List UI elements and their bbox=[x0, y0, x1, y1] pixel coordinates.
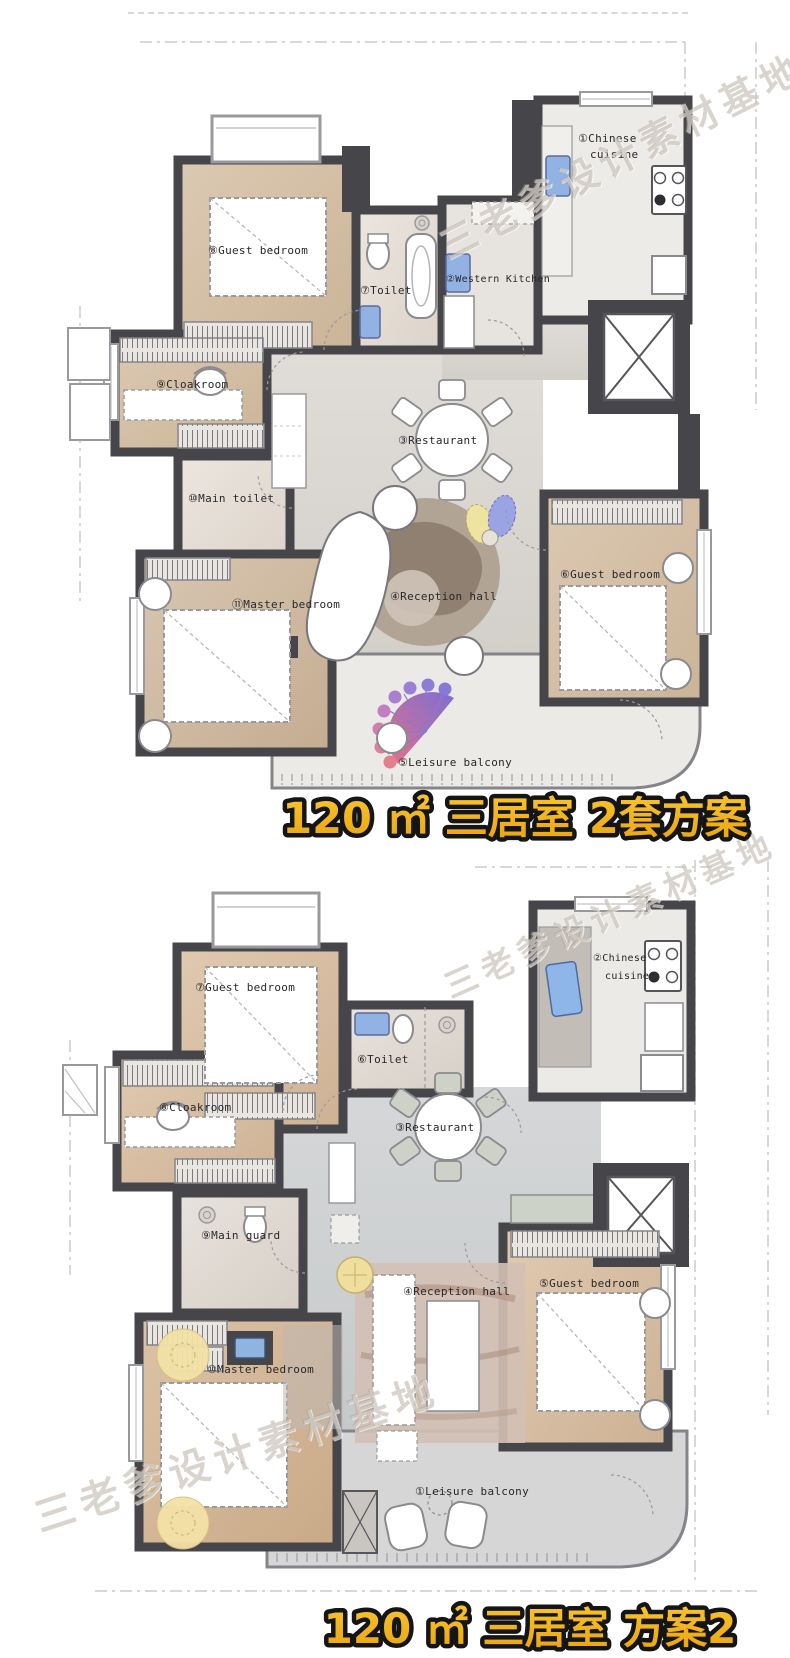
plan2-label-guest-bedroom-top: ⑦Guest bedroom bbox=[195, 981, 295, 994]
shower-drain-icon bbox=[439, 1017, 455, 1033]
plan2-label-restaurant: ③Restaurant bbox=[395, 1121, 474, 1134]
side-table bbox=[373, 486, 417, 530]
plan2-label-main-guard: ⑨Main guard bbox=[201, 1229, 280, 1242]
plan1-elevator bbox=[588, 300, 690, 414]
plan1-cloakroom-island bbox=[124, 390, 242, 420]
kitchen-counter bbox=[645, 1003, 683, 1051]
plan2-title-text: 120 ㎡ 三居室 方案2 bbox=[324, 1604, 737, 1653]
plan1-title: 120 ㎡ 三居室 2套方案 bbox=[255, 786, 775, 850]
plan2-label-chinese-cuisine-2: cuisine bbox=[605, 971, 649, 982]
plan1-label-restaurant: ③Restaurant bbox=[398, 434, 477, 447]
plan1-balcony-stool bbox=[377, 723, 407, 753]
plan1-label-master-bedroom: ⑪Master bedroom bbox=[232, 598, 340, 611]
plan1-hall-console bbox=[272, 394, 306, 488]
floor-plan-2: ⑦Guest bedroom ⑥Toilet ②Chinese cuisine … bbox=[55, 855, 775, 1597]
plan1-bay-window bbox=[212, 116, 320, 162]
plan2-label-chinese-cuisine: ②Chinese bbox=[593, 953, 647, 964]
plan1-label-reception-hall: ④Reception hall bbox=[390, 590, 497, 603]
kitchen-counter bbox=[542, 126, 572, 276]
kitchen-counter bbox=[444, 296, 474, 348]
sink-icon bbox=[546, 961, 583, 1017]
fridge-icon bbox=[652, 256, 686, 294]
sink-icon bbox=[446, 254, 470, 292]
plan2-label-cloakroom: ⑧Cloakroom bbox=[159, 1101, 232, 1114]
plan1-label-guest-bedroom-right: ⑥Guest bedroom bbox=[560, 568, 660, 581]
plan1-label-chinese-cuisine-2: cuisine bbox=[590, 148, 638, 161]
kitchen-counter bbox=[472, 202, 534, 224]
plan1-label-toilet: ⑦Toilet bbox=[360, 284, 412, 297]
plan2-label-guest-bedroom-right: ⑤Guest bedroom bbox=[539, 1277, 639, 1290]
coffee-table bbox=[427, 1301, 479, 1411]
sink-icon bbox=[235, 1338, 265, 1358]
sink-icon bbox=[546, 156, 570, 196]
fridge-icon bbox=[641, 1055, 683, 1091]
plan2-title: 120 ㎡ 三居室 方案2 bbox=[290, 1599, 770, 1657]
plan1-label-cloakroom: ⑨Cloakroom bbox=[156, 378, 229, 391]
sink-icon bbox=[355, 1013, 389, 1035]
plan1-title-text: 120 ㎡ 三居室 2套方案 bbox=[282, 794, 749, 844]
plan1-label-chinese-cuisine: ①Chinese bbox=[578, 132, 637, 145]
plan1-label-leisure-balcony: ⑤Leisure balcony bbox=[398, 756, 512, 769]
plan1-label-main-toilet: ⑩Main toilet bbox=[188, 492, 274, 505]
floor-plan-1: ①Chinese cuisine ②Western Kitchen ⑦Toile… bbox=[60, 38, 760, 800]
toilet-icon bbox=[393, 1015, 413, 1043]
plan2-label-reception-hall: ④Reception hall bbox=[403, 1285, 510, 1298]
plan1-label-western-kitchen: ②Western Kitchen bbox=[446, 274, 550, 285]
plan2-main-guard-room bbox=[177, 1193, 303, 1313]
shower-drain-icon bbox=[199, 1207, 215, 1223]
plan2-hall-console bbox=[329, 1143, 355, 1203]
plan2-gray-rug bbox=[283, 1325, 343, 1429]
plan2-label-toilet: ⑥Toilet bbox=[357, 1053, 409, 1066]
plan1-label-guest-bedroom-top: ⑧Guest bedroom bbox=[208, 244, 308, 257]
floor-drain-icon bbox=[415, 216, 429, 230]
plan2-hall-box bbox=[331, 1215, 359, 1243]
plan2-bay-window bbox=[213, 893, 319, 947]
plan2-label-master-bedroom: ⑩Master bedroom bbox=[207, 1363, 314, 1376]
side-table bbox=[445, 637, 483, 675]
plan2-label-leisure-balcony: ①Leisure balcony bbox=[415, 1485, 529, 1498]
stove-icon bbox=[645, 941, 681, 991]
page-top-boundary-line bbox=[128, 12, 688, 14]
sink-icon bbox=[360, 306, 380, 338]
stove-icon bbox=[652, 166, 686, 214]
